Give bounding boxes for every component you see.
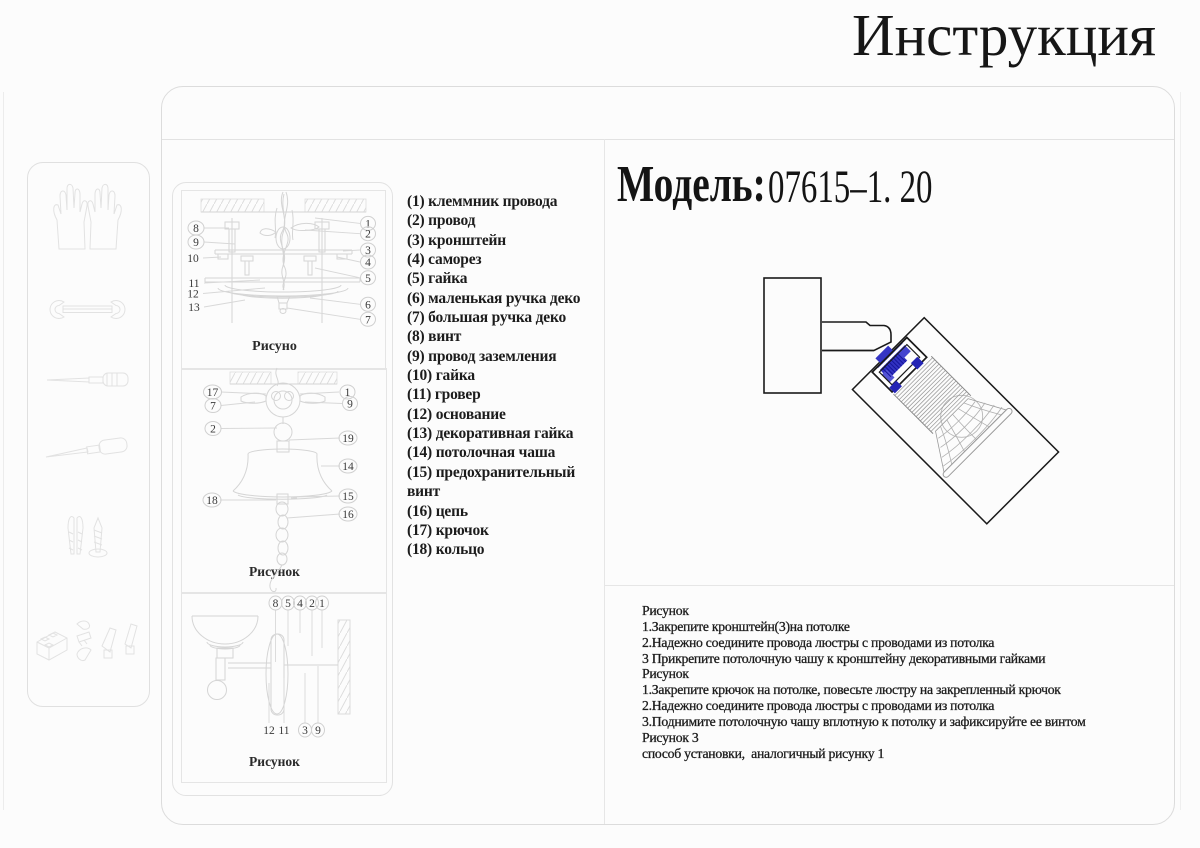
svg-text:2: 2 [309, 598, 315, 610]
svg-text:5: 5 [285, 598, 291, 610]
svg-text:5: 5 [365, 273, 371, 285]
svg-text:2: 2 [210, 424, 216, 436]
svg-text:1: 1 [319, 598, 325, 610]
svg-text:11: 11 [278, 725, 289, 737]
svg-text:15: 15 [342, 491, 354, 503]
svg-text:10: 10 [187, 253, 199, 265]
svg-text:8: 8 [193, 223, 199, 235]
svg-text:17: 17 [207, 387, 219, 399]
svg-text:7: 7 [365, 314, 371, 326]
svg-text:19: 19 [342, 433, 354, 445]
svg-text:12: 12 [187, 289, 199, 301]
svg-text:4: 4 [297, 598, 303, 610]
svg-text:9: 9 [193, 237, 199, 249]
svg-text:8: 8 [273, 598, 279, 610]
svg-text:13: 13 [188, 302, 200, 314]
svg-text:9: 9 [347, 399, 353, 411]
svg-text:4: 4 [365, 257, 371, 269]
svg-text:12: 12 [263, 725, 275, 737]
svg-text:6: 6 [365, 299, 371, 311]
svg-text:18: 18 [206, 495, 218, 507]
svg-text:14: 14 [342, 461, 354, 473]
svg-text:16: 16 [342, 509, 354, 521]
svg-text:3: 3 [302, 725, 308, 737]
svg-text:9: 9 [315, 725, 321, 737]
svg-text:2: 2 [365, 229, 371, 241]
svg-text:7: 7 [210, 401, 216, 413]
